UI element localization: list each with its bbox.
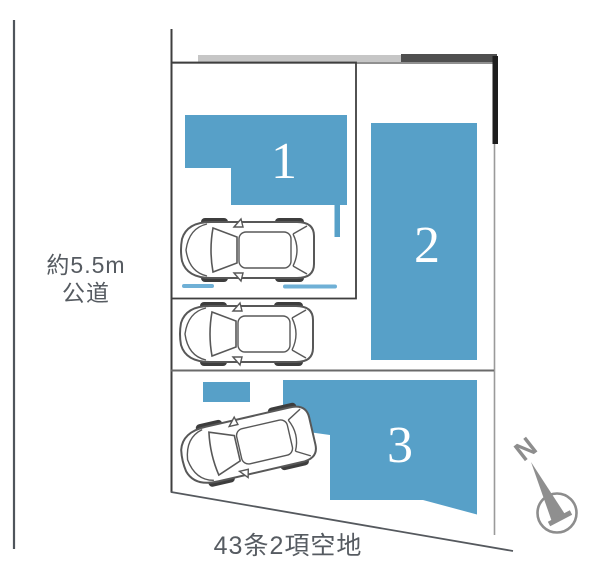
wheel-stopper-dash-1 xyxy=(182,284,214,288)
compass-icon xyxy=(531,462,577,533)
lot-3-number: 3 xyxy=(355,417,445,475)
lot-1-boundary-stub xyxy=(335,205,341,237)
road-type-label: 公道 xyxy=(26,279,146,307)
lot-2-number: 2 xyxy=(382,217,472,275)
road-width-label: 約5.5m 公道 xyxy=(26,251,146,307)
compass-needle xyxy=(531,462,565,521)
lot-1-number: 1 xyxy=(239,133,329,191)
top-wall-light-band xyxy=(198,55,401,62)
car-top-view-icon-2 xyxy=(180,302,313,366)
site-plan-diagram: 約5.5m 公道 1 2 3 43条2項空地 N xyxy=(0,0,600,566)
lot-3-small-patch xyxy=(203,382,250,402)
wheel-stopper-dash-2 xyxy=(283,285,337,289)
road-width-value: 約5.5m xyxy=(26,251,146,279)
top-wall-dark-band xyxy=(401,54,497,62)
car-top-view-icon-1 xyxy=(181,218,314,282)
right-wall-dark-band xyxy=(493,56,499,144)
setback-area-label: 43条2項空地 xyxy=(198,526,378,562)
car-top-view-icon-3 xyxy=(175,400,319,492)
